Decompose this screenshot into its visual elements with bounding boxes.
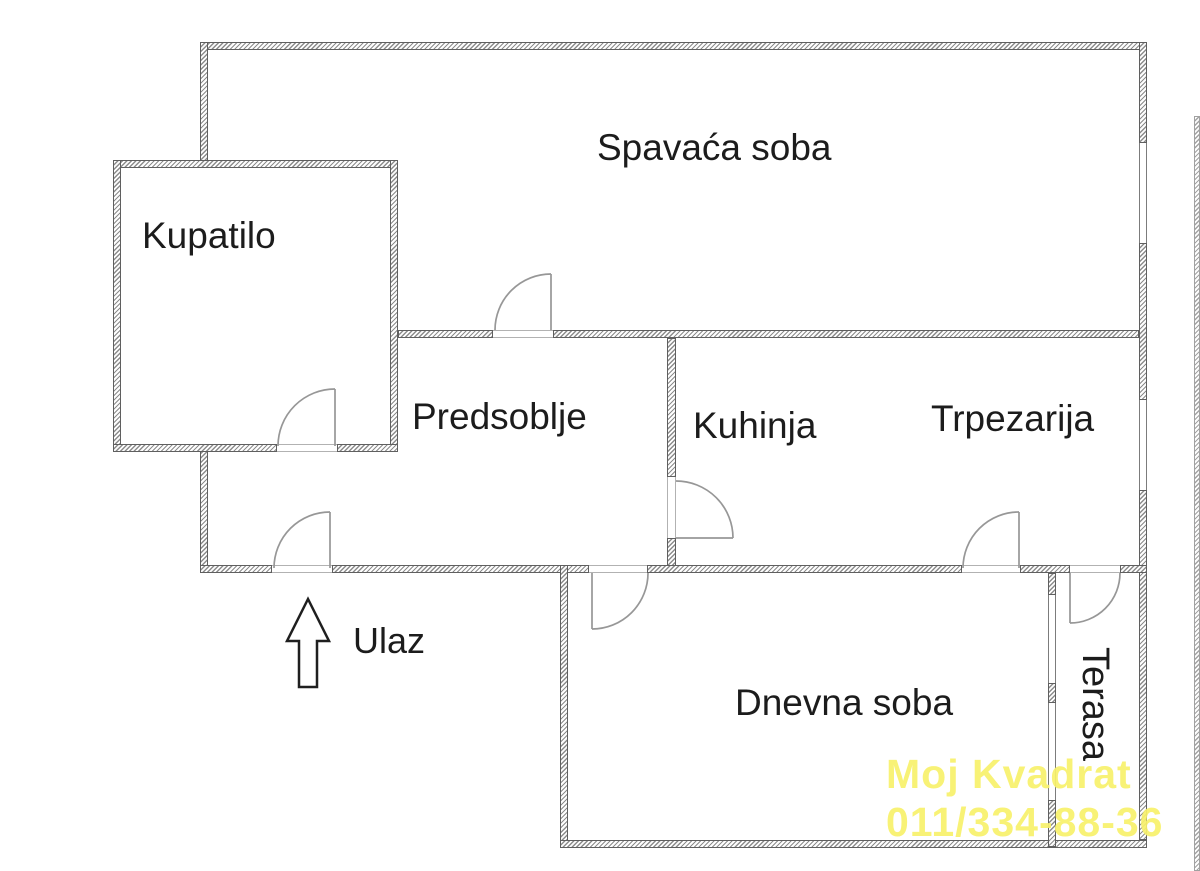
wall-right-upper xyxy=(1139,42,1147,143)
wall-corridor-bottom-3 xyxy=(647,565,962,573)
floor-plan: Spavaća soba Kupatilo Predsoblje Kuhinja… xyxy=(0,0,1200,871)
wall-bathroom-left xyxy=(113,160,121,452)
wall-left-upper xyxy=(200,42,208,168)
door-terrace xyxy=(1070,573,1120,623)
wall-terrace-left-1 xyxy=(1048,573,1056,595)
sill-bedroom-door xyxy=(493,330,553,338)
door-bathroom xyxy=(278,389,335,446)
watermark-line1: Moj Kvadrat xyxy=(886,750,1163,798)
window-terrace-1 xyxy=(1048,595,1056,683)
wall-corridor-bottom-4 xyxy=(1020,565,1070,573)
door-arc xyxy=(278,389,335,446)
entrance-arrow-icon xyxy=(287,599,329,687)
window-bedroom xyxy=(1139,143,1147,243)
wall-bedroom-divider-left xyxy=(398,330,493,338)
wall-right-middle xyxy=(1139,243,1147,400)
door-arc xyxy=(274,512,330,568)
door-kitchen xyxy=(676,481,733,538)
door-living xyxy=(592,573,648,629)
door-arc xyxy=(676,481,733,538)
door-bedroom xyxy=(495,274,551,330)
sill-kitchen-door xyxy=(667,477,676,538)
sill-terrace-door xyxy=(1070,565,1120,573)
room-label-living: Dnevna soba xyxy=(735,683,953,724)
room-label-bedroom: Spavaća soba xyxy=(597,128,832,169)
sill-living-door xyxy=(589,565,647,573)
door-arc xyxy=(963,512,1019,568)
wall-kitchen-upper xyxy=(667,338,676,477)
watermark-line2: 011/334-88-36 xyxy=(886,798,1163,846)
room-label-kitchen: Kuhinja xyxy=(693,406,816,447)
wall-living-left xyxy=(560,565,568,847)
door-arc xyxy=(592,573,648,629)
wall-bathroom-bottom-right xyxy=(337,444,398,452)
wall-bathroom-right xyxy=(390,160,398,452)
room-label-bathroom: Kupatilo xyxy=(142,216,276,257)
wall-left-lower xyxy=(200,444,208,573)
wall-bathroom-bottom-left xyxy=(113,444,277,452)
wall-right-edge-strip xyxy=(1194,116,1200,871)
room-label-dining: Trpezarija xyxy=(931,399,1094,440)
watermark: Moj Kvadrat 011/334-88-36 xyxy=(886,750,1163,846)
sill-dining-door xyxy=(962,565,1020,573)
wall-bathroom-top xyxy=(113,160,398,168)
door-entrance xyxy=(274,512,330,568)
entrance-label: Ulaz xyxy=(353,621,425,661)
wall-terrace-left-2 xyxy=(1048,683,1056,703)
door-dining xyxy=(963,512,1019,568)
room-label-hallway: Predsoblje xyxy=(412,397,587,438)
sill-entrance-door xyxy=(272,565,332,573)
wall-corridor-bottom-1 xyxy=(200,565,272,573)
door-arc xyxy=(1070,573,1120,623)
window-dining xyxy=(1139,400,1147,490)
door-arc xyxy=(495,274,551,330)
wall-bedroom-divider-right xyxy=(553,330,1139,338)
sill-bathroom-door xyxy=(277,444,337,452)
wall-top xyxy=(200,42,1147,50)
wall-corridor-bottom-2 xyxy=(332,565,589,573)
wall-corridor-bottom-5 xyxy=(1120,565,1147,573)
